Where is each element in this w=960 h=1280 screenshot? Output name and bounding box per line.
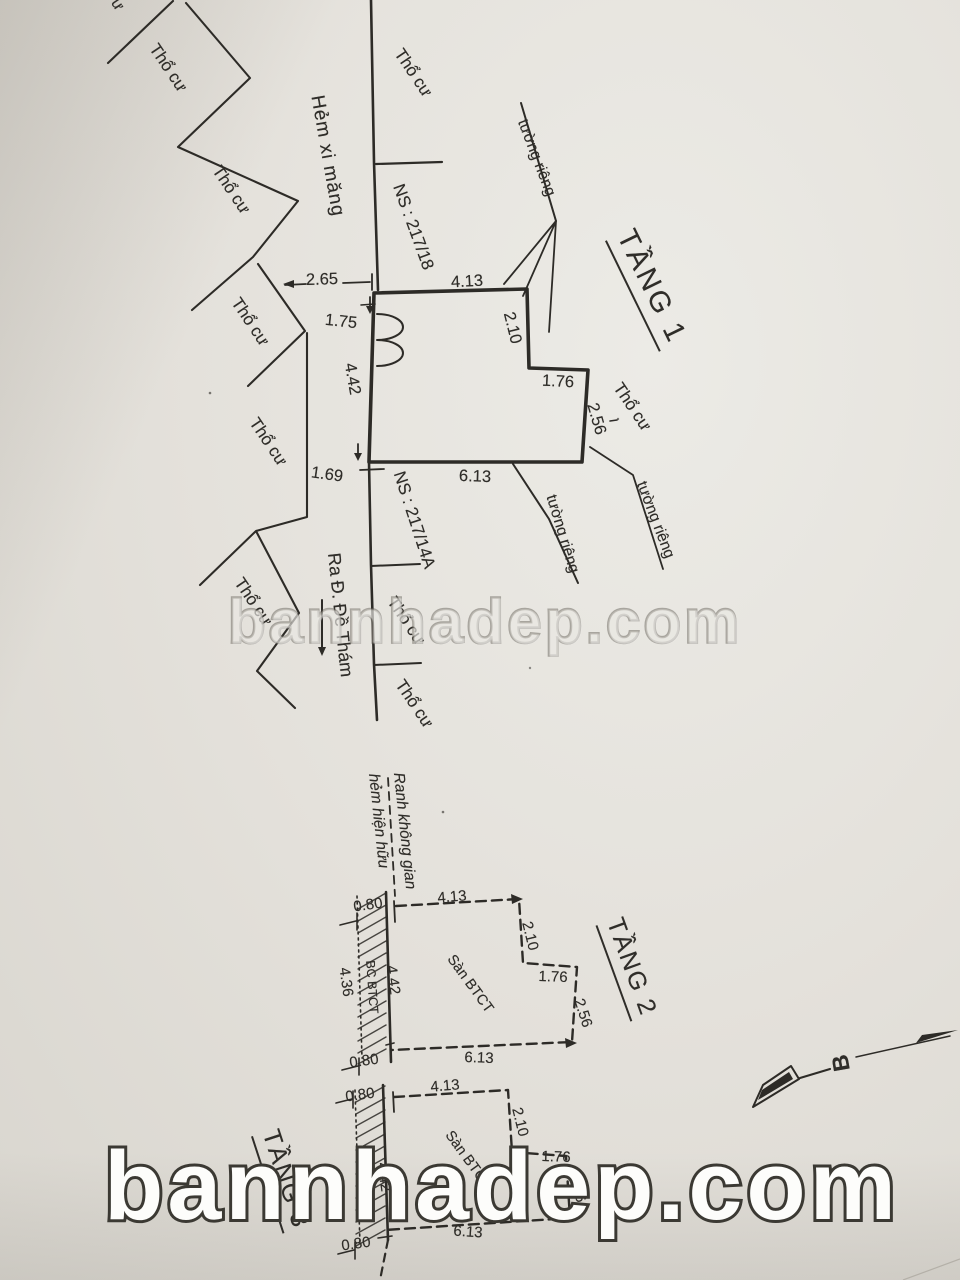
f1-dim-step: 1.76	[541, 372, 574, 393]
f2-dim-top: 4.13	[437, 887, 468, 906]
watermark-middle: bannhadep.com	[228, 587, 742, 658]
scanned-floor-plan-page: Thổ cư Thổ cư Thổ cư Thổ cư Thổ cư Thổ c…	[0, 0, 960, 1280]
f1-dim-left-upper: 1.75	[324, 311, 358, 333]
watermark-bottom: bannhadep.com	[104, 1130, 900, 1242]
f2-dim-bottom: 6.13	[464, 1049, 494, 1067]
f1-dim-bottom: 6.13	[459, 467, 492, 487]
f1-dim-top: 4.13	[450, 272, 483, 293]
f1-dim-offset-left: 2.65	[306, 270, 339, 290]
f2-dim-step: 1.76	[538, 968, 568, 986]
f3-dim-top: 4.13	[430, 1076, 461, 1095]
